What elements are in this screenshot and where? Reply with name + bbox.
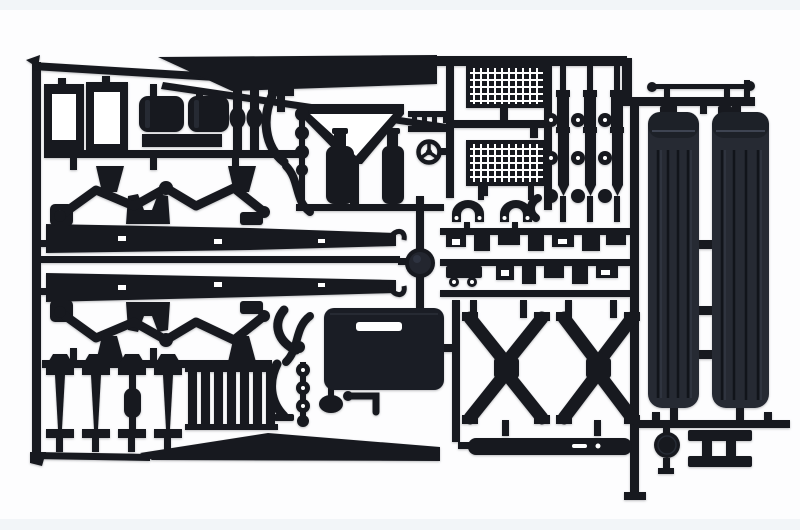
sprue-photo-canvas: [0, 0, 800, 530]
panel-top-band: [648, 112, 699, 138]
large-fuel-tank: [324, 308, 444, 390]
tank-slot: [356, 322, 402, 331]
photo-edge-bottom: [0, 519, 800, 530]
axle-bracket: [446, 266, 482, 278]
bumper-hole: [596, 444, 601, 449]
front-bumper: [468, 438, 632, 455]
side-panel: [712, 112, 769, 408]
tank-sheen: [145, 100, 150, 128]
tank-sheen: [194, 100, 199, 128]
panel-top-band: [712, 112, 769, 138]
sprue-photo: [0, 0, 800, 530]
photo-edge-top: [0, 0, 800, 10]
sprue-center-hub: [405, 248, 435, 278]
hub-sheen: [413, 255, 421, 263]
bumper-slot: [572, 444, 587, 448]
